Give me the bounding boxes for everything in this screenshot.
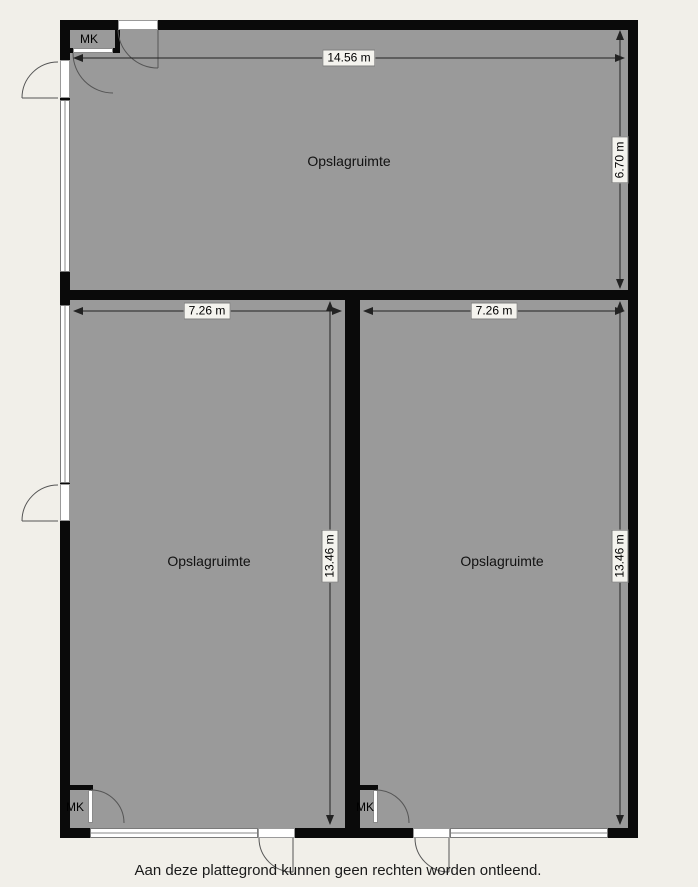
door-opening-bottom-right: [413, 828, 450, 838]
mk-label-top-left: MK: [63, 32, 115, 46]
disclaimer-text: Aan deze plattegrond kunnen geen rechten…: [0, 862, 676, 879]
wall-right: [628, 20, 638, 838]
dimension-label-top-width: 14.56 m: [322, 50, 375, 67]
door-arc-left-bottom: [22, 485, 58, 521]
dimension-label-bottom-right-width: 7.26 m: [471, 303, 518, 320]
door-opening-left-top: [60, 60, 70, 98]
wall-central-vertical: [345, 295, 360, 838]
door-opening-top-entrance: [118, 20, 158, 30]
door-opening-left-bottom: [60, 484, 70, 521]
dimension-label-bottom-left-width: 7.26 m: [184, 303, 231, 320]
door-leaf-mk-top-left: [73, 48, 113, 53]
room-label-top: Opslagruimte: [307, 153, 390, 169]
mk-label-bottom-right: MK: [351, 800, 379, 814]
room-label-bottom-right: Opslagruimte: [460, 553, 543, 569]
dimension-label-bottom-left-height: 13.46 m: [322, 529, 339, 582]
door-opening-bottom-left: [258, 828, 295, 838]
window-left-bottom-room: [60, 305, 70, 483]
dimension-label-top-height: 6.70 m: [612, 137, 629, 184]
mk-label-bottom-left: MK: [59, 800, 91, 814]
dimension-label-bottom-right-height: 13.46 m: [612, 529, 629, 582]
floorplan-canvas: Opslagruimte Opslagruimte Opslagruimte 1…: [0, 0, 698, 887]
window-bottom-right-room: [450, 828, 608, 838]
room-label-bottom-left: Opslagruimte: [167, 553, 250, 569]
window-left-top-room: [60, 100, 70, 272]
door-arc-left-top: [22, 62, 58, 98]
window-bottom-left-room: [90, 828, 258, 838]
